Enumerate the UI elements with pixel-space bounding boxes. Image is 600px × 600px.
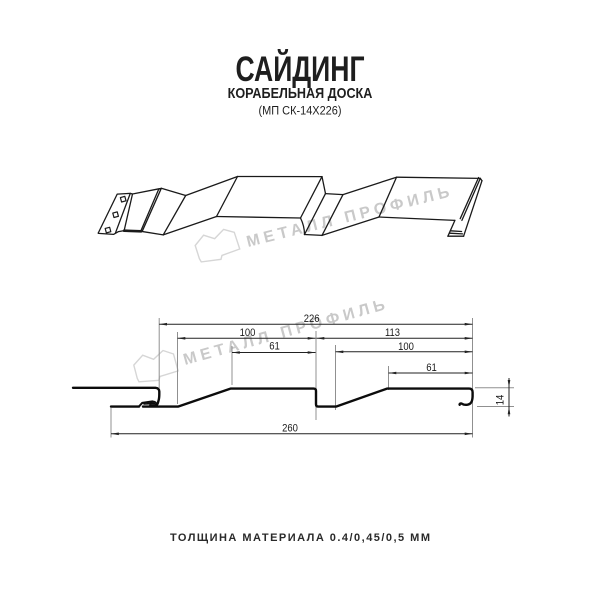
svg-text:14: 14: [495, 395, 507, 406]
svg-text:(МП СК-14Х226): (МП СК-14Х226): [259, 106, 342, 118]
svg-text:ТОЛЩИНА МАТЕРИАЛА 0.4/0,45/0,5: ТОЛЩИНА МАТЕРИАЛА 0.4/0,45/0,5 ММ: [170, 532, 430, 544]
svg-text:226: 226: [304, 313, 320, 325]
svg-text:61: 61: [269, 340, 280, 352]
svg-text:260: 260: [282, 422, 298, 434]
svg-text:113: 113: [385, 327, 400, 339]
svg-text:61: 61: [426, 362, 437, 374]
svg-text:100: 100: [398, 341, 414, 353]
svg-text:100: 100: [240, 327, 256, 339]
svg-text:КОРАБЕЛЬНАЯ ДОСКА: КОРАБЕЛЬНАЯ ДОСКА: [228, 85, 373, 102]
svg-text:САЙДИНГ: САЙДИНГ: [236, 49, 365, 89]
